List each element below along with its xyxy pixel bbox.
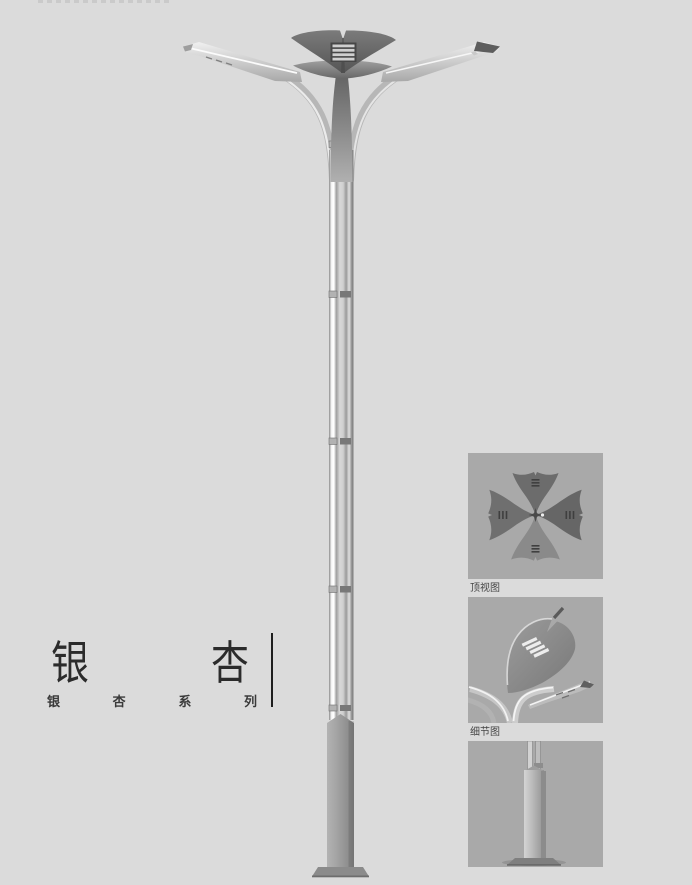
- title-char: 杏: [211, 637, 249, 689]
- pole: [329, 150, 354, 720]
- figure-base-view: [468, 741, 603, 867]
- title-char: 银: [51, 637, 89, 689]
- figure-caption: 细节图: [470, 727, 500, 739]
- figure-caption: 顶视图: [470, 583, 500, 595]
- head-stem: [331, 68, 353, 182]
- title-divider: [271, 633, 273, 707]
- base-view-image: [468, 741, 603, 867]
- product-title: 银 杏: [47, 637, 253, 689]
- top-view-image: [468, 453, 603, 579]
- figure-top-view: [468, 453, 603, 579]
- figure-detail-view: [468, 597, 603, 723]
- right-arm: [350, 42, 500, 181]
- base-column: [312, 714, 369, 877]
- catalog-page: 银 杏 银 杏 系 列: [0, 0, 692, 885]
- detail-view-image: [468, 597, 603, 723]
- series-label: 银 杏 系 列: [47, 691, 257, 710]
